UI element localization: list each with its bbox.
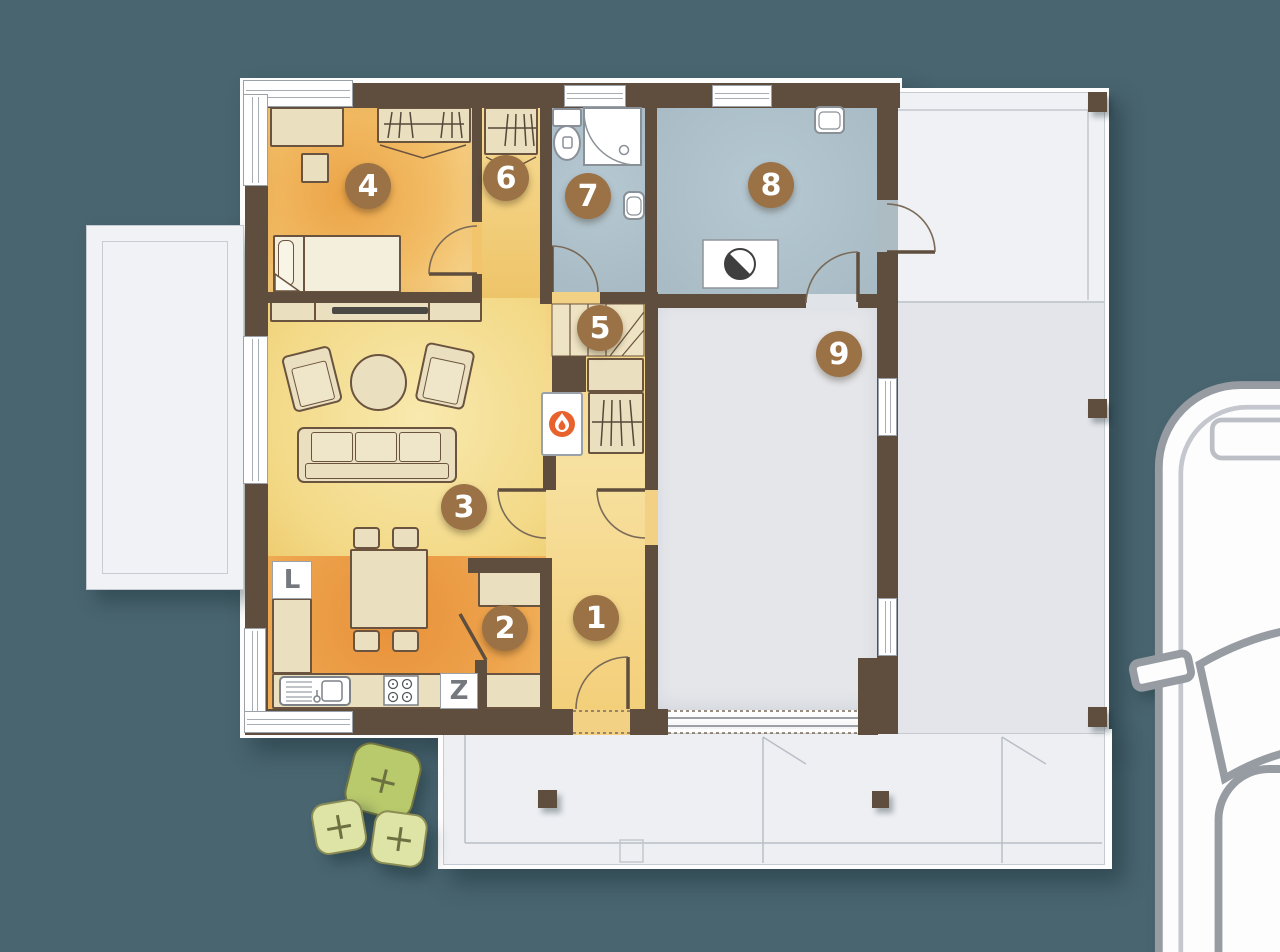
counter-z-label: Z: [450, 676, 469, 706]
room-number: 1: [586, 601, 607, 636]
armchair-seat: [422, 357, 466, 406]
wall-hall-garage-upper: [645, 292, 658, 490]
wall-utility-garage-left: [651, 294, 806, 308]
wall-bedroom-living: [245, 292, 482, 303]
room-badge-2: 2: [482, 605, 528, 651]
kitchen-corner-window-bottom: [244, 711, 353, 733]
wall-bathroom-bottom-stub: [540, 292, 552, 304]
room-number: 8: [761, 168, 782, 203]
room-badge-7: 7: [565, 173, 611, 219]
room-number: 7: [578, 179, 599, 214]
bedroom-wardrobe: [377, 107, 471, 143]
dining-table: [350, 549, 428, 629]
room-number: 2: [495, 611, 516, 646]
terrace-door-opening: [877, 200, 898, 252]
wall-hall-garage-lower: [645, 545, 658, 711]
wall-fireplace-stub: [543, 456, 556, 490]
wall-stair-block: [552, 356, 586, 392]
porch-post: [872, 791, 889, 808]
kitchen-corner-window-side: [244, 628, 266, 720]
room-badge-8: 8: [748, 162, 794, 208]
wall-kitchen-hall: [540, 558, 552, 710]
bedroom-side-window: [243, 94, 268, 186]
sofa-backrest: [305, 463, 449, 479]
kitchen-counter-bottom: [272, 673, 544, 709]
understair-closet: [587, 358, 644, 392]
room-number: 4: [358, 169, 379, 204]
carport-post: [1088, 707, 1107, 727]
bed-pillow: [278, 240, 294, 286]
room-badge-6: 6: [483, 155, 529, 201]
room-number: 3: [454, 490, 475, 525]
wall-kitchen-hall-top: [468, 558, 552, 573]
living-room-terrace-window: [243, 336, 268, 484]
corridor-wardrobe: [484, 107, 538, 155]
left-terrace-inner-edge: [102, 241, 228, 574]
garage-window-2: [878, 598, 897, 656]
bed: [273, 235, 401, 293]
garage-car: [1132, 385, 1280, 952]
room-badge-3: 3: [441, 484, 487, 530]
room-number: 5: [590, 311, 611, 346]
garage-corner-pier: [858, 658, 878, 735]
bedroom-door-opening: [472, 222, 482, 274]
bathroom-window: [564, 85, 626, 107]
hall-wardrobe: [588, 392, 644, 454]
wall-corridor-bathroom: [540, 100, 552, 300]
rear-terrace: [897, 92, 1105, 302]
wall-bedroom-corridor-lower: [472, 274, 482, 292]
fridge-box: L: [272, 561, 312, 599]
hall-garage-door-opening: [645, 490, 658, 545]
sideboard-divider: [428, 301, 430, 320]
utility-garage-door-opening: [806, 294, 858, 308]
kitchen-counter-left: [272, 598, 312, 674]
bedroom-dresser: [270, 107, 344, 147]
bed-headboard-line: [303, 237, 305, 291]
tv-set: [332, 307, 428, 314]
bathroom-door-opening: [552, 292, 600, 304]
sofa: [297, 427, 457, 483]
floor-plan-canvas: L Z: [0, 0, 1280, 952]
coffee-table: [350, 354, 407, 411]
room-badge-1: 1: [573, 595, 619, 641]
dining-chair: [392, 630, 419, 652]
bush-small: [309, 797, 369, 857]
dining-chair: [392, 527, 419, 549]
carport-post: [1088, 399, 1107, 418]
bedroom-stool: [301, 153, 329, 183]
sofa-cushion: [399, 432, 441, 462]
room-number: 6: [496, 161, 517, 196]
dining-chair: [353, 527, 380, 549]
wall-bedroom-corridor-upper: [472, 100, 482, 222]
carport-post: [1088, 92, 1107, 112]
kitchen-cabinet: [478, 567, 542, 607]
room-badge-4: 4: [345, 163, 391, 209]
fireplace: [541, 392, 583, 456]
utility-window: [712, 85, 772, 107]
wall-utility-garage-right: [858, 294, 880, 308]
room-badge-9: 9: [816, 331, 862, 377]
wall-bathroom-utility: [645, 100, 657, 300]
garage-window-1: [878, 378, 897, 436]
counter-z-box: Z: [440, 673, 478, 709]
room-badge-5: 5: [577, 305, 623, 351]
sideboard-divider: [314, 301, 316, 320]
porch-post: [538, 790, 557, 808]
front-door-opening: [573, 709, 630, 735]
sofa-cushion: [355, 432, 397, 462]
bush-small: [369, 809, 430, 870]
dining-chair: [353, 630, 380, 652]
room-number: 9: [829, 337, 850, 372]
sofa-cushion: [311, 432, 353, 462]
driveway: [897, 302, 1105, 738]
left-terrace: [86, 225, 244, 590]
armchair-seat: [291, 360, 336, 408]
fridge-label: L: [284, 565, 301, 595]
